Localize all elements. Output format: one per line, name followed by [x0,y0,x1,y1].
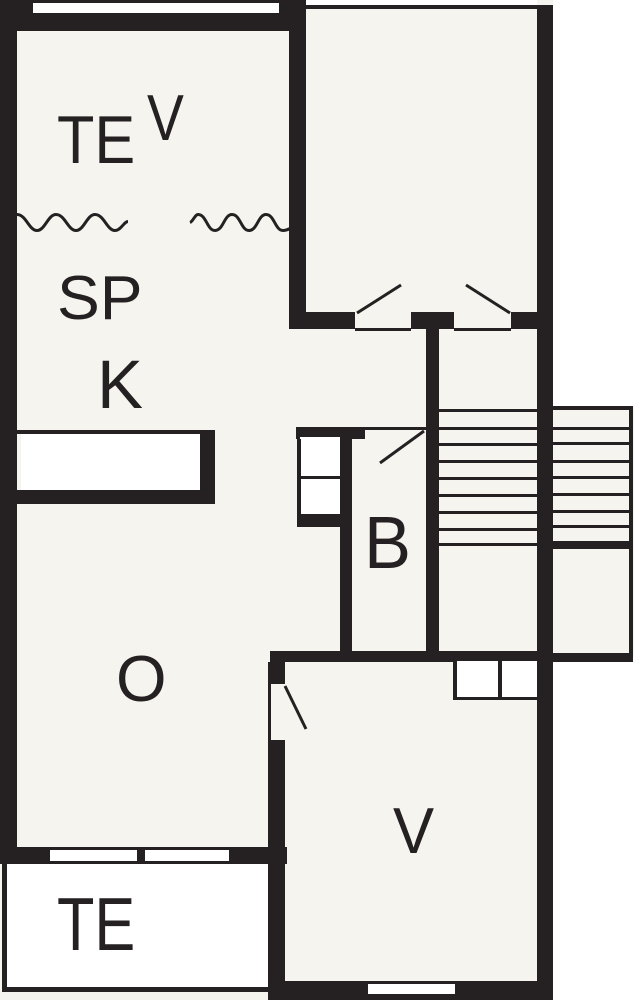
svg-text:V: V [393,795,434,867]
svg-text:B: B [364,502,411,584]
svg-text:TE: TE [57,101,135,178]
svg-text:SP: SP [57,264,143,333]
svg-text:TE: TE [57,882,135,966]
svg-text:K: K [97,346,143,423]
svg-text:O: O [116,642,167,715]
svg-text:V: V [147,81,184,154]
